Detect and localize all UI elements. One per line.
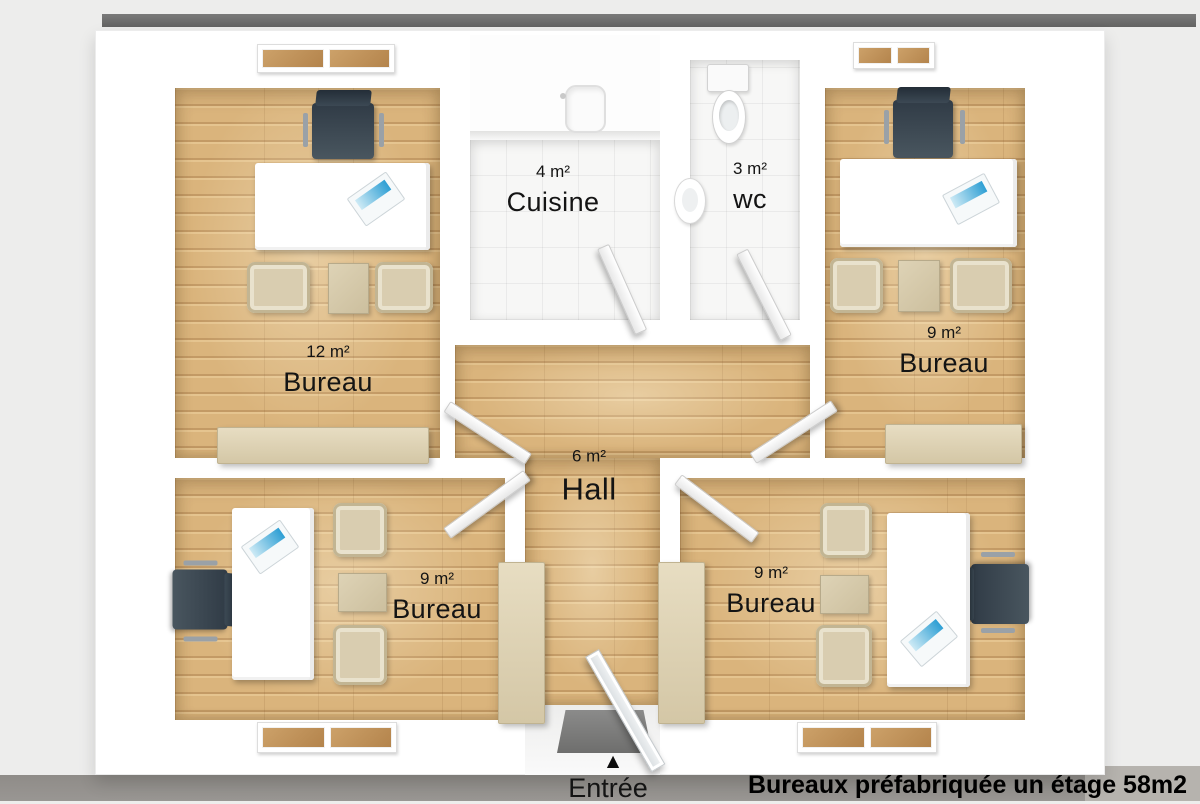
plan-caption: Bureaux préfabriquée un étage 58m2 (748, 771, 1187, 800)
window-top-right (853, 42, 935, 69)
office-chair (312, 103, 374, 159)
window-bottom-right (797, 722, 937, 753)
entrance-label: Entrée (568, 773, 648, 804)
desk (255, 163, 430, 250)
window-pane (897, 47, 931, 64)
room-name: Cuisine (507, 187, 600, 218)
window-pane (858, 47, 892, 64)
armchair (333, 625, 387, 685)
room-label-cuisine: 4 m² Cuisine (507, 162, 600, 218)
room-label-hall: 6 m² Hall (561, 447, 616, 508)
armchair (333, 503, 387, 557)
room-area: 6 m² (561, 447, 616, 467)
window-pane (330, 727, 393, 748)
cabinet (498, 562, 545, 724)
armchair (816, 625, 872, 687)
room-name: Bureau (726, 588, 815, 619)
room-area: 3 m² (733, 159, 767, 179)
room-label-bureau-top-right: 9 m² Bureau (899, 323, 988, 379)
side-table (898, 260, 940, 312)
room-label-bureau-top-left: 12 m² Bureau (283, 342, 372, 398)
armchair (375, 262, 433, 313)
room-name: Bureau (899, 348, 988, 379)
window-pane (870, 727, 933, 748)
entrance-arrow-icon: ▲ (603, 751, 624, 772)
office-chair (893, 100, 953, 158)
armchair (830, 258, 883, 313)
armchair (820, 503, 872, 558)
room-area: 9 m² (726, 563, 815, 583)
room-name: Hall (561, 472, 616, 508)
cabinet (658, 562, 705, 724)
side-table (820, 575, 869, 614)
room-label-wc: 3 m² wc (733, 159, 767, 215)
room-area: 9 m² (392, 569, 481, 589)
window-bottom-left (257, 722, 397, 753)
side-table (338, 573, 387, 612)
roof-edge-bar (102, 14, 1196, 27)
armchair (950, 258, 1012, 313)
room-area: 12 m² (283, 342, 372, 362)
kitchen-sink (565, 85, 606, 133)
room-label-bureau-bottom-right: 9 m² Bureau (726, 563, 815, 619)
window-top-left (257, 44, 395, 73)
room-area: 4 m² (507, 162, 600, 182)
office-chair (173, 570, 228, 630)
armchair (247, 262, 310, 313)
office-chair (971, 564, 1029, 624)
room-area: 9 m² (899, 323, 988, 343)
sideboard (217, 427, 429, 464)
room-name: Bureau (283, 367, 372, 398)
wc-sink (674, 178, 706, 224)
sideboard (885, 424, 1022, 464)
window-pane (262, 49, 324, 68)
toilet-tank (707, 64, 749, 92)
window-pane (262, 727, 325, 748)
window-pane (802, 727, 865, 748)
window-pane (329, 49, 391, 68)
room-label-bureau-bottom-left: 9 m² Bureau (392, 569, 481, 625)
toilet-bowl (712, 90, 746, 144)
side-table (328, 263, 369, 314)
room-name: Bureau (392, 594, 481, 625)
room-name: wc (733, 184, 767, 215)
